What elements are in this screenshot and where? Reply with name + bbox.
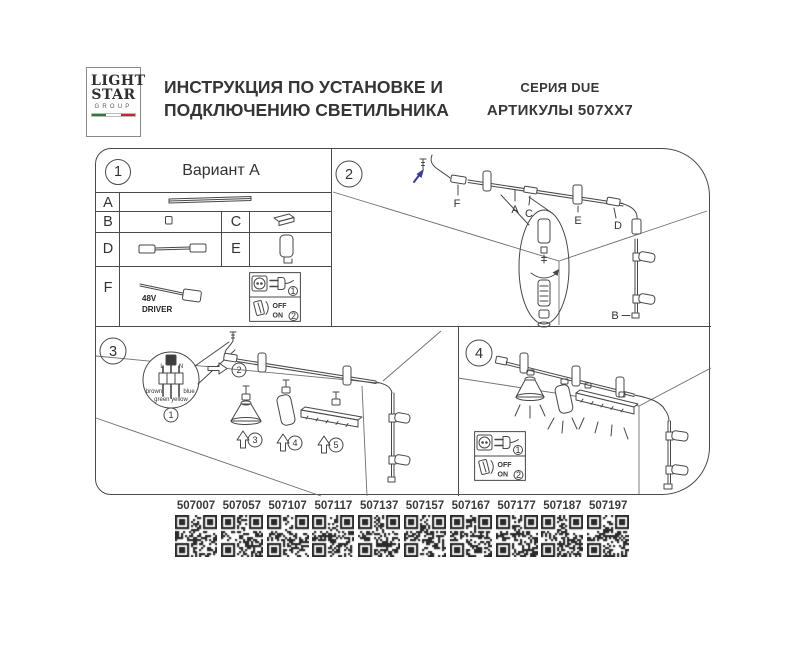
step-1-badge: 1 [168, 410, 173, 420]
qr-article-label: 507117 [312, 500, 354, 512]
part-e-label: E [224, 241, 248, 257]
ceiling-mount [616, 377, 624, 397]
step-3-badge: 3 [252, 435, 257, 445]
series-label: СЕРИЯ DUE [455, 80, 665, 95]
power-steps-box: 1 OFF ON 2 [474, 431, 526, 481]
spot-light [666, 430, 688, 441]
part-b-label: B [99, 214, 117, 230]
switch-step-badge: 2 [291, 311, 296, 321]
insert-arrow-icon [237, 431, 249, 448]
linear-lamp [301, 392, 362, 427]
wire-blue-label: blue [183, 389, 195, 395]
qr-item: 507197 [587, 500, 629, 557]
qr-code [267, 515, 309, 557]
switch-step-badge: 2 [516, 470, 521, 480]
cylinder-lamp [276, 380, 296, 426]
spot-light [666, 464, 688, 475]
cone-lamp [231, 386, 261, 425]
qr-article-label: 507177 [496, 500, 538, 512]
qr-article-label: 507187 [541, 500, 583, 512]
cylinder-lamp [548, 379, 577, 433]
part-f-label: F [99, 280, 117, 296]
section-3-number: 3 [109, 344, 117, 360]
part-d-label: D [99, 241, 117, 257]
qr-item: 507167 [450, 500, 492, 557]
label-e: E [574, 215, 581, 227]
light-rays [579, 418, 628, 439]
power-cable [431, 155, 450, 178]
linear-lamp [576, 383, 638, 439]
qr-article-label: 507157 [404, 500, 446, 512]
qr-code [404, 515, 446, 557]
qr-article-label: 507137 [358, 500, 400, 512]
qr-code [358, 515, 400, 557]
track-connector-c [524, 186, 538, 194]
page-title: ИНСТРУКЦИЯ ПО УСТАНОВКЕ И ПОДКЛЮЧЕНИЮ СВ… [164, 76, 464, 122]
ceiling-mount [343, 366, 351, 385]
plug-step-badge: 1 [290, 286, 295, 296]
qr-item: 507057 [221, 500, 263, 557]
step-5-badge: 5 [333, 440, 338, 450]
suspension-part-e [573, 185, 582, 204]
qr-code [587, 515, 629, 557]
socket-icon [477, 435, 492, 450]
wire-green-yellow-label: green yellow [154, 397, 188, 403]
articles-label: АРТИКУЛЫ 507XX7 [455, 102, 665, 119]
label-f: F [454, 198, 461, 210]
wire-brown-label: brown [146, 389, 162, 395]
label-a: A [511, 204, 519, 216]
socket-icon [252, 276, 267, 291]
qr-item: 507107 [267, 500, 309, 557]
ceiling-mount [572, 366, 580, 386]
driver-box [450, 175, 466, 184]
step-2-badge: 2 [236, 365, 241, 375]
spot-light [633, 293, 656, 305]
corner-connector-d [606, 197, 641, 234]
plug-step-badge: 1 [515, 445, 520, 455]
logo-line-2: STAR [91, 88, 136, 102]
qr-article-label: 507197 [587, 500, 629, 512]
insert-arrow-icon [277, 434, 289, 451]
flex-connector-icon [138, 241, 208, 257]
wire-n-label: N [179, 364, 183, 370]
switch-off-label: OFF [273, 303, 288, 310]
driver-voltage-label: 48V DRIVER [142, 294, 172, 315]
main-diagram-panel: 1 Вариант А A B C D E F 48V DRIVER [95, 148, 710, 495]
section-1-parts-table: 1 Вариант А A B C D E F 48V DRIVER [96, 149, 331, 326]
light-rays [548, 418, 577, 433]
feed-connector [223, 353, 237, 362]
qr-article-label: 507057 [221, 500, 263, 512]
switch-on-label: ON [498, 472, 509, 479]
qr-code [221, 515, 263, 557]
instruction-sheet: { "header": { "logo_line1": "LIGHT", "lo… [0, 0, 800, 655]
qr-item: 507177 [496, 500, 538, 557]
ceiling-mount [483, 171, 491, 191]
label-d: D [614, 220, 622, 232]
step-4-badge: 4 [292, 438, 297, 448]
italy-flag-icon [91, 113, 136, 117]
qr-code [496, 515, 538, 557]
qr-code [312, 515, 354, 557]
qr-item: 507117 [312, 500, 354, 557]
power-steps-box: 1 OFF ON 2 [249, 272, 301, 322]
qr-item: 507157 [404, 500, 446, 557]
qr-code [541, 515, 583, 557]
lightstar-logo: LIGHT STAR GROUP [86, 67, 141, 137]
part-a-label: A [99, 195, 117, 211]
qr-article-label: 507007 [175, 500, 217, 512]
logo-line-3: GROUP [91, 104, 136, 110]
qr-code [175, 515, 217, 557]
section-2-number: 2 [345, 167, 353, 183]
qr-article-label: 507107 [267, 500, 309, 512]
article-qr-row: 507007 507057 507107 507117 507137 50715… [175, 500, 629, 557]
series-block: СЕРИЯ DUE АРТИКУЛЫ 507XX7 [455, 80, 665, 119]
screw-direction-arrow-icon [414, 169, 424, 182]
label-c: C [525, 208, 533, 220]
screw-icon [420, 159, 426, 169]
power-switch-icon [478, 459, 493, 475]
switch-on-label: ON [273, 313, 284, 320]
section-2-diagram: 2 [331, 149, 711, 326]
spot-light [389, 412, 411, 423]
insert-arrow-icon [318, 436, 330, 453]
switch-off-label: OFF [498, 462, 513, 469]
qr-code [450, 515, 492, 557]
section-4-number: 4 [475, 346, 483, 362]
end-cap-icon [164, 215, 175, 226]
title-line-1: ИНСТРУКЦИЯ ПО УСТАНОВКЕ И [164, 76, 464, 99]
ceiling-mount [258, 353, 266, 372]
suspension-exploded-view [531, 219, 559, 327]
spot-light [633, 251, 656, 263]
qr-article-label: 507167 [450, 500, 492, 512]
connector-icon [272, 212, 296, 228]
screw-icon [230, 332, 236, 341]
qr-item: 507007 [175, 500, 217, 557]
label-b: B [611, 310, 618, 322]
light-rays [515, 405, 545, 418]
qr-item: 507137 [358, 500, 400, 557]
cone-lamp [515, 370, 545, 418]
track-rail-icon [166, 195, 254, 208]
qr-item: 507187 [541, 500, 583, 557]
logo-line-1: LIGHT [91, 74, 136, 88]
part-c-label: C [224, 214, 248, 230]
power-switch-icon [253, 300, 268, 316]
spot-light [389, 454, 411, 465]
end-cap-part-b [622, 313, 639, 318]
suspension-cylinder-icon [276, 234, 298, 268]
title-line-2: ПОДКЛЮЧЕНИЮ СВЕТИЛЬНИКА [164, 99, 464, 122]
variant-a-title: Вариант А [119, 162, 323, 180]
section-3-diagram: 3 [96, 326, 458, 496]
